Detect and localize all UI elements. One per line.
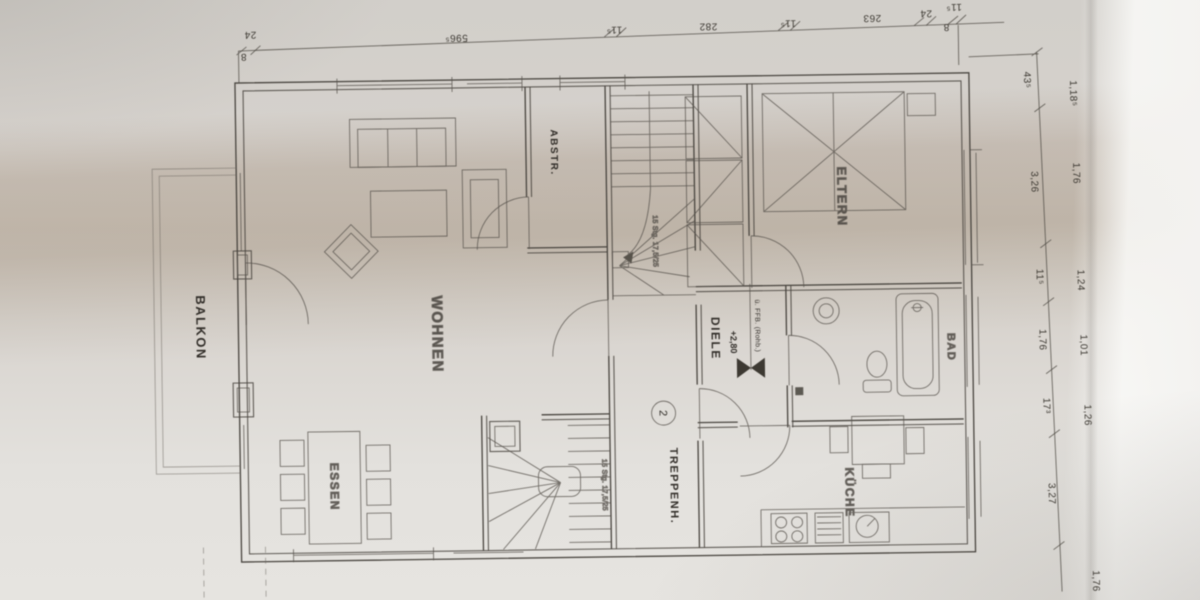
dim-label: 11⁵: [780, 17, 796, 28]
dim-label: 1,01: [1078, 334, 1089, 356]
stair-hall: TREPPENH. 2: [651, 401, 680, 525]
stair-note-upper: 15 Stg. 17,5/25: [651, 215, 659, 267]
dim-label: 11⁵: [1034, 269, 1045, 285]
room-label-wohnen: WOHNEN: [428, 296, 446, 374]
dim-label: 1,76: [1090, 570, 1101, 592]
dim-label: 17³: [1040, 398, 1051, 414]
stair-lower: 15 Stg. 17,5/25: [488, 425, 612, 550]
dim-label: 24: [244, 29, 256, 40]
dim-label: 8: [240, 51, 246, 62]
room-label-treppenh: TREPPENH.: [667, 448, 680, 525]
dim-label: 3,27: [1046, 483, 1057, 505]
dim-label: 11⁵: [946, 1, 962, 12]
level-annotation: +2,80: [728, 331, 738, 354]
level-note: ü. FFB. (Rohb.): [753, 299, 761, 352]
stair-note-lower: 15 Stg. 17,5/25: [600, 459, 608, 511]
furniture-eltern: ELTERN: [685, 91, 938, 286]
diele-annotations: DIELE +2,80 ü. FFB. (Rohb.): [708, 284, 765, 379]
room-label-abstr: ABSTR.: [548, 129, 560, 175]
furniture-wohnen: WOHNEN: [323, 117, 509, 374]
dim-label: 1,26: [1082, 404, 1093, 426]
floor-plan: BALKON: [0, 0, 1200, 600]
windows: [239, 70, 988, 563]
dimension-chain-right: 43⁵ 3,26 11⁵ 1,76 17³ 3,27 1,18⁵ 1,76 1,…: [969, 47, 1102, 593]
room-label-eltern: ELTERN: [834, 166, 850, 226]
dim-label: 1,76: [1036, 329, 1047, 351]
dim-label: 8: [943, 21, 949, 32]
dim-label: 11⁵: [606, 24, 622, 35]
floor-plan-photo: BALKON: [0, 0, 1200, 600]
room-label-essen: ESSEN: [327, 463, 342, 511]
stair-upper: 15 Stg. 17,5/25: [610, 91, 696, 296]
furniture-essen: ESSEN: [280, 431, 392, 545]
door-swings: [245, 193, 841, 483]
dim-label: 24: [920, 7, 932, 18]
dim-label: 43⁵: [1021, 72, 1032, 89]
dashed-outline: [203, 547, 266, 600]
dim-label: 596⁵: [445, 32, 468, 43]
dim-label: 3,26: [1028, 171, 1039, 193]
dim-label: 282: [699, 20, 717, 31]
dimension-chain-top: 8 24 596⁵ 11⁵ 282 11⁵ 263 24 11⁵ 8: [236, 0, 1005, 83]
elevation-marker: [737, 358, 751, 378]
dim-label: 1,24: [1075, 269, 1086, 291]
room-label-balkon: BALKON: [193, 295, 209, 360]
fixtures-kueche: KÜCHE: [760, 415, 966, 547]
room-label-diele: DIELE: [708, 317, 723, 360]
dim-label: 1,76: [1070, 163, 1081, 185]
dim-label: 263: [863, 12, 881, 23]
fixtures-bad: BAD: [813, 293, 957, 397]
wall-jambs: [231, 251, 253, 417]
dim-label: 1,18⁵: [1067, 80, 1078, 106]
balcony-outline: BALKON: [152, 168, 240, 474]
apartment-number-mark: 2: [657, 410, 669, 416]
room-label-bad: BAD: [944, 333, 956, 362]
room-label-kueche: KÜCHE: [842, 467, 858, 517]
